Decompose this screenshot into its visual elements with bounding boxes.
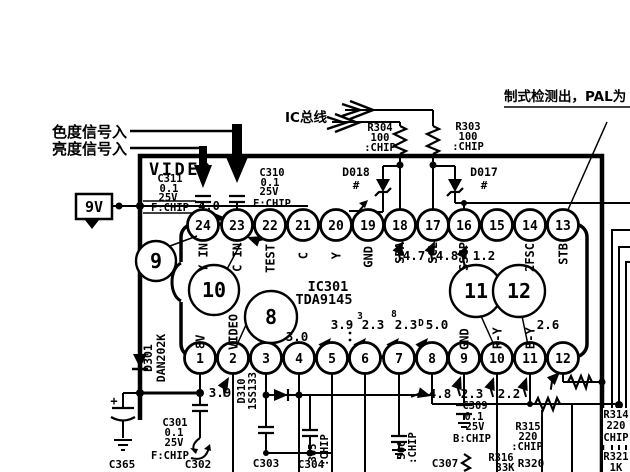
pin-2-num: 2	[229, 352, 237, 367]
pin-5-num: 5	[328, 352, 336, 367]
pin-7-num: 7	[395, 352, 403, 367]
pin-6-mark: 3	[357, 311, 363, 322]
9v-label: 9V	[85, 198, 103, 216]
pin-10-label: R-Y	[491, 327, 505, 349]
tp12-num: 12	[507, 279, 531, 303]
pin-20-label: Y	[330, 251, 344, 259]
c303-ref: C303	[253, 457, 280, 470]
pin-18-volt: 4.7	[403, 248, 426, 263]
c310-voltage: 25V	[260, 186, 280, 198]
c306-type: :CHIP	[407, 432, 419, 464]
d310-part: 1SS133	[247, 372, 259, 410]
c305-ref: 305	[307, 444, 319, 463]
pin-23-label: C IN	[231, 243, 245, 272]
pin-13-label: STB	[557, 243, 571, 265]
pin-16-label: SSCP	[457, 242, 471, 271]
pin-6-volt: 2.3	[362, 317, 385, 332]
pin-11-num: 11	[522, 352, 538, 367]
c307-ref: C307	[432, 457, 459, 470]
pin-10-num: 10	[489, 352, 505, 367]
pin-19-num: 19	[360, 219, 376, 234]
d017-mark: #	[481, 179, 488, 192]
cap-c305	[302, 430, 318, 436]
d018-ref: D018	[342, 165, 370, 179]
volt-2-2: 2.2	[498, 386, 521, 401]
r314-type: CHIP	[603, 432, 628, 444]
pin-16-num: 16	[456, 219, 472, 234]
c365-plus: +	[110, 394, 117, 408]
r303-zigzag	[427, 126, 439, 154]
pin-18-num: 18	[392, 219, 408, 234]
tp8-num: 8	[265, 305, 277, 329]
r303-type: :CHIP	[452, 141, 484, 153]
tp10-num: 10	[202, 278, 226, 302]
c307-squiggle	[462, 454, 470, 471]
pin-7-volt: 2.3	[395, 317, 418, 332]
schematic-page: 色度信号入 亮度信号入 IC总线 制式检测出，PAL为 VIDEO 9V IC3…	[0, 0, 630, 472]
ic-part: TDA9145	[296, 292, 353, 308]
r304-type: :CHIP	[364, 142, 396, 154]
c309-type: B:CHIP	[453, 433, 491, 445]
volt-4-0: 4.0	[198, 199, 220, 213]
pin-4-volt: 3.0	[286, 329, 309, 344]
c310-type: F:CHIP	[253, 198, 291, 210]
volt-2-3: 2.3	[461, 386, 484, 401]
r314-value: 220	[607, 420, 626, 432]
pin-14-label: 2FSC	[523, 243, 537, 272]
pin-21-num: 21	[295, 219, 311, 234]
chroma-in-label: 色度信号入	[52, 123, 127, 141]
d017-ref: D017	[470, 165, 498, 179]
pin-24-label: Y IN	[197, 243, 211, 272]
pin-13-num: 13	[555, 219, 571, 234]
pin-8-volt: 5.0	[426, 317, 449, 332]
tp9-num: 9	[150, 249, 162, 273]
pin-3-num: 3	[262, 352, 270, 367]
cap-below-pin1	[192, 405, 208, 411]
c305-type: :CHIP	[319, 434, 331, 466]
pin-17-num: 17	[425, 219, 441, 234]
pin-15-num: 15	[489, 219, 505, 234]
d018-mark: #	[353, 179, 360, 192]
9v-down-arrow	[85, 220, 99, 229]
pin-23-num: 23	[229, 219, 245, 234]
pin-22-num: 22	[262, 219, 278, 234]
ic-top-pins	[188, 210, 579, 241]
c365-ref: C365	[109, 458, 136, 471]
d301-part: DAN202K	[154, 334, 168, 383]
c301-type: F:CHIP	[151, 450, 189, 462]
pin-17-volt: 4.8	[436, 248, 459, 263]
pin-14-num: 14	[522, 219, 538, 234]
tp11-num: 11	[464, 279, 488, 303]
pin-2-label: VIDEO	[227, 314, 241, 350]
pin-16-volt: 1.2	[473, 248, 496, 263]
ic-bus-label: IC总线	[285, 109, 327, 126]
r316-value: 33K	[496, 462, 516, 472]
pin-4-num: 4	[295, 352, 303, 367]
c301-voltage: 25V	[165, 437, 185, 449]
pin-8-mark: D	[418, 318, 424, 329]
pin-1-label: 8V	[194, 335, 208, 349]
pin-9-num: 9	[460, 352, 468, 367]
r315-wires	[542, 404, 572, 472]
volt-3-9-pin1: 3.9	[209, 385, 232, 400]
pin-12-num: 12	[555, 352, 571, 367]
detect-note-lines	[504, 107, 630, 212]
chroma-input-arrow	[226, 124, 248, 183]
cap-c310-symbol	[229, 196, 245, 202]
c311-type: F:CHIP	[151, 202, 189, 214]
ic-bottom-pins	[185, 343, 579, 374]
r321-value: 1K	[610, 462, 623, 472]
luma-in-label: 亮度信号入	[52, 140, 127, 158]
d310-triangle	[274, 389, 288, 401]
pin-12-volt: 2.6	[537, 317, 560, 332]
detect-note: 制式检测出，PAL为	[504, 88, 626, 105]
pin-11-label: B-Y	[524, 327, 538, 349]
pin-21-label: C	[297, 252, 311, 259]
pin-9-label: GND	[458, 328, 472, 350]
pin-7-mark: 8	[391, 309, 397, 320]
pin-19-label: GND	[362, 246, 376, 268]
c309-voltage: 25V	[466, 421, 486, 433]
volt-4-8: 4.8	[429, 386, 452, 401]
r320-ref: R320	[518, 457, 545, 470]
pin-5-volt: 3.9	[331, 317, 354, 332]
pin-22-label: TEST	[264, 244, 278, 273]
pin-8-num: 8	[428, 352, 436, 367]
pin-1-num: 1	[196, 352, 204, 367]
pin-24-num: 24	[195, 219, 211, 234]
d301-ref: D301	[141, 344, 155, 372]
c302-ref: C302	[185, 458, 212, 471]
ground-c365	[114, 440, 132, 450]
schematic-canvas: 色度信号入 亮度信号入 IC总线 制式检测出，PAL为 VIDEO 9V IC3…	[0, 0, 630, 472]
pin-6-num: 6	[361, 352, 369, 367]
pin-20-num: 20	[328, 219, 344, 234]
cap-below-pin3	[258, 427, 274, 433]
r315-type: :CHIP	[511, 441, 543, 453]
